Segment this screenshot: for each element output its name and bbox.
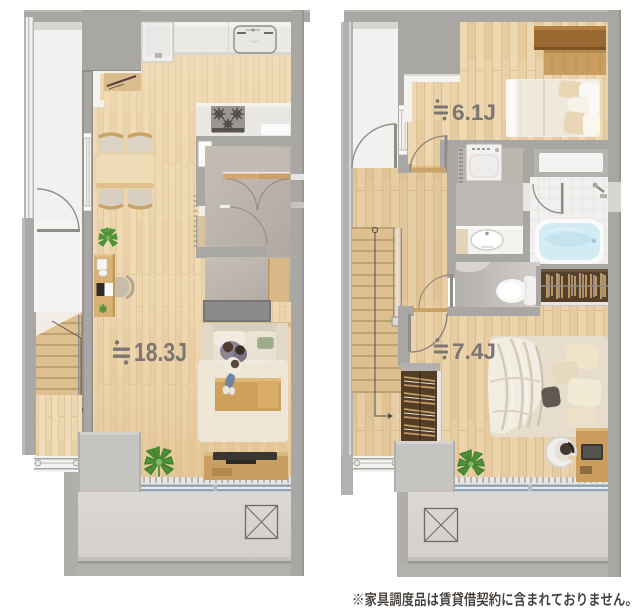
- svg-text:18.3J: 18.3J: [134, 337, 187, 367]
- svg-text:7.4J: 7.4J: [452, 339, 496, 364]
- svg-text:6.1J: 6.1J: [452, 100, 496, 125]
